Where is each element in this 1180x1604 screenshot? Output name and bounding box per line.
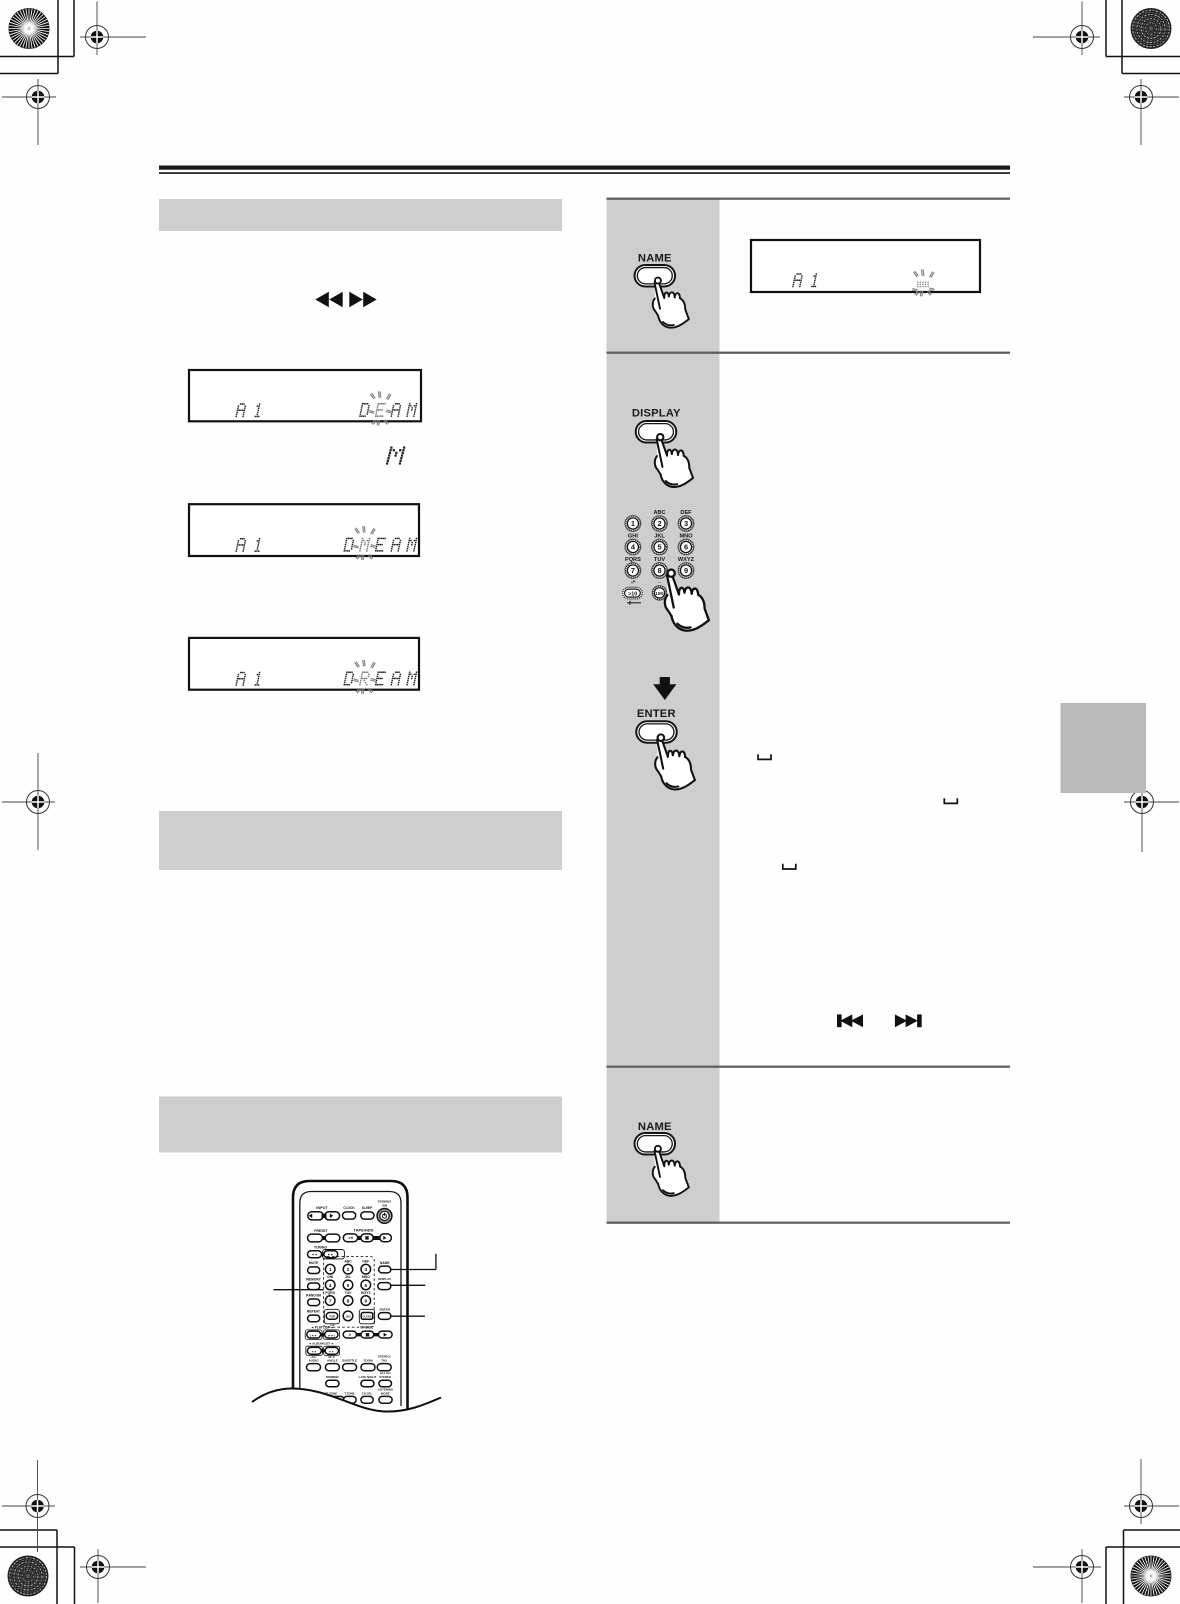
svg-text:CLOCK: CLOCK (343, 1206, 355, 1210)
svg-text:9: 9 (684, 566, 688, 575)
svg-text:5: 5 (347, 1283, 350, 1289)
svg-text:DEF: DEF (362, 1259, 369, 1263)
svg-text:9: 9 (364, 1299, 367, 1305)
svg-text:DISPLAY: DISPLAY (632, 407, 681, 419)
svg-text:ANGLE: ANGLE (327, 1359, 338, 1363)
svg-text:7: 7 (329, 1299, 332, 1305)
svg-text:~: ~ (347, 1305, 349, 1309)
svg-text:RANDOM: RANDOM (306, 1294, 321, 1298)
svg-text:MUTE: MUTE (309, 1261, 319, 1265)
svg-text:◄ ALBUM/LIST ►: ◄ ALBUM/LIST ► (308, 1342, 334, 1346)
svg-text:JKL: JKL (345, 1275, 351, 1279)
svg-text:2: 2 (657, 519, 661, 528)
svg-text:PRESET: PRESET (314, 1229, 328, 1233)
svg-text:NAME: NAME (638, 253, 672, 265)
svg-text:TUNING: TUNING (314, 1245, 327, 1249)
svg-text:3: 3 (364, 1267, 367, 1273)
svg-text:LATE NIGHT: LATE NIGHT (359, 1375, 377, 1379)
svg-text:ABC: ABC (344, 1259, 352, 1263)
svg-text:MEMORY: MEMORY (306, 1278, 322, 1282)
svg-text:10/0: 10/0 (345, 1315, 351, 1319)
svg-text:7: 7 (631, 566, 635, 575)
svg-text:CH/DISC: CH/DISC (360, 1325, 374, 1329)
svg-text:♪/*: ♪/* (630, 579, 635, 584)
svg-text:TAPE/HDD: TAPE/HDD (353, 1227, 373, 1232)
svg-text:SLEEP: SLEEP (362, 1206, 373, 1210)
svg-text:MNO: MNO (362, 1275, 370, 1279)
svg-text:DISPLAY: DISPLAY (378, 1277, 392, 1281)
svg-text:1: 1 (329, 1267, 332, 1273)
svg-text:◄II: ◄II (348, 1236, 353, 1240)
svg-text:4: 4 (329, 1283, 332, 1289)
svg-text:/ON: /ON (382, 1203, 387, 1207)
svg-text:►►: ►► (327, 1253, 333, 1257)
svg-text:CLEAR: CLEAR (363, 1314, 372, 1318)
svg-text:>10: >10 (329, 1314, 335, 1318)
svg-text:8: 8 (347, 1299, 350, 1305)
svg-text:6: 6 (364, 1283, 367, 1289)
svg-text:◄ PLAYLIST ►: ◄ PLAYLIST ► (311, 1325, 334, 1329)
svg-text:MODE: MODE (381, 1391, 390, 1395)
svg-text:THX: THX (381, 1358, 387, 1362)
svg-text:◄◄: ◄◄ (311, 1253, 317, 1257)
svg-text:6: 6 (684, 543, 688, 552)
svg-text:PQRS: PQRS (325, 1291, 335, 1295)
svg-text:►►: ►► (329, 1349, 335, 1353)
svg-text:8: 8 (657, 566, 661, 575)
svg-text:STEREO: STEREO (379, 1375, 392, 1379)
svg-text:ENTER: ENTER (379, 1307, 390, 1311)
svg-text:1: 1 (631, 519, 635, 528)
svg-text:10/0: 10/0 (655, 591, 664, 596)
svg-text:5: 5 (657, 543, 661, 552)
svg-text:II: II (349, 1333, 351, 1337)
svg-text:>10: >10 (628, 592, 637, 598)
svg-text:2: 2 (347, 1267, 350, 1273)
svg-text:REPEAT: REPEAT (307, 1310, 320, 1314)
svg-text:DIMMER: DIMMER (326, 1375, 339, 1379)
svg-text:AUDIO: AUDIO (309, 1359, 320, 1363)
svg-text:INPUT: INPUT (316, 1206, 328, 1210)
svg-text:3: 3 (684, 519, 688, 528)
svg-text:ENTER: ENTER (637, 708, 676, 720)
svg-text:NAME: NAME (380, 1261, 391, 1265)
svg-text:|◄◄: |◄◄ (310, 1333, 317, 1337)
svg-text:SUBTITLE: SUBTITLE (342, 1359, 357, 1363)
svg-text:◄◄: ◄◄ (311, 1349, 317, 1353)
svg-text:CH SEL: CH SEL (362, 1391, 373, 1395)
svg-text:GHI: GHI (327, 1275, 333, 1279)
svg-text:ZOOM: ZOOM (363, 1359, 373, 1363)
svg-text:WXYZ: WXYZ (361, 1291, 371, 1295)
svg-text:NAME: NAME (638, 1121, 672, 1133)
svg-text:TUV: TUV (345, 1291, 353, 1295)
svg-text:T.TONE: T.TONE (344, 1391, 354, 1395)
svg-text:►►|: ►►| (328, 1333, 335, 1337)
